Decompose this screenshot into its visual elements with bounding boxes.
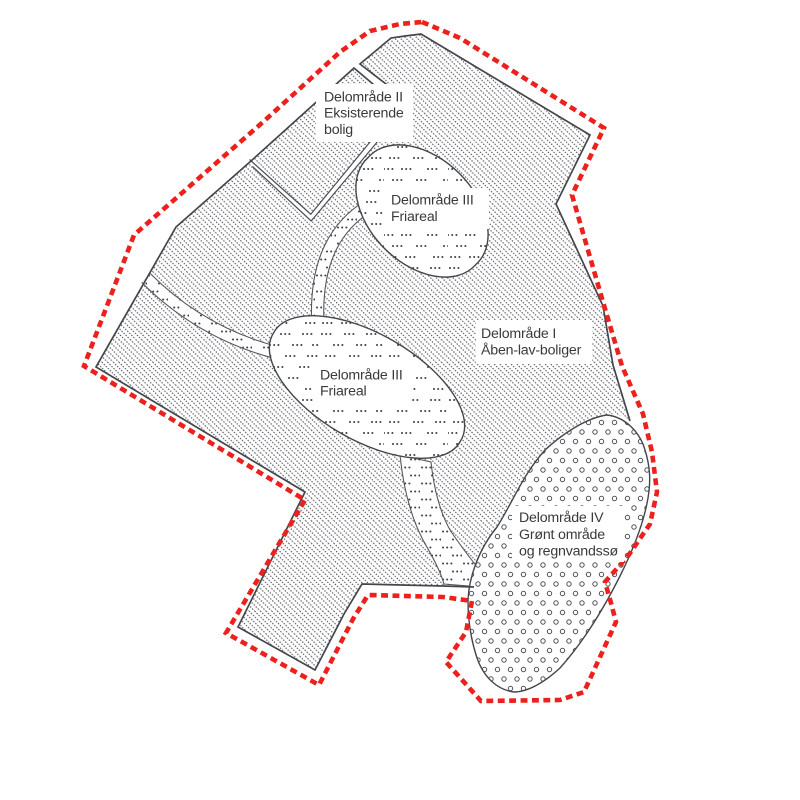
svg-text:og regnvandssø: og regnvandssø (519, 543, 618, 559)
svg-text:Delområde III: Delområde III (320, 367, 403, 383)
svg-text:Delområde I: Delområde I (481, 326, 556, 342)
svg-text:Friareal: Friareal (391, 209, 438, 225)
svg-text:Åben-lav-boliger: Åben-lav-boliger (481, 342, 582, 359)
svg-text:Friareal: Friareal (320, 384, 367, 400)
svg-text:Eksisterende: Eksisterende (324, 106, 404, 122)
svg-text:Grønt område: Grønt område (519, 527, 605, 543)
svg-text:Delområde II: Delområde II (324, 89, 403, 105)
svg-text:bolig: bolig (324, 122, 353, 138)
svg-text:Delområde IV: Delområde IV (519, 510, 604, 526)
svg-text:Delområde III: Delområde III (391, 193, 474, 209)
